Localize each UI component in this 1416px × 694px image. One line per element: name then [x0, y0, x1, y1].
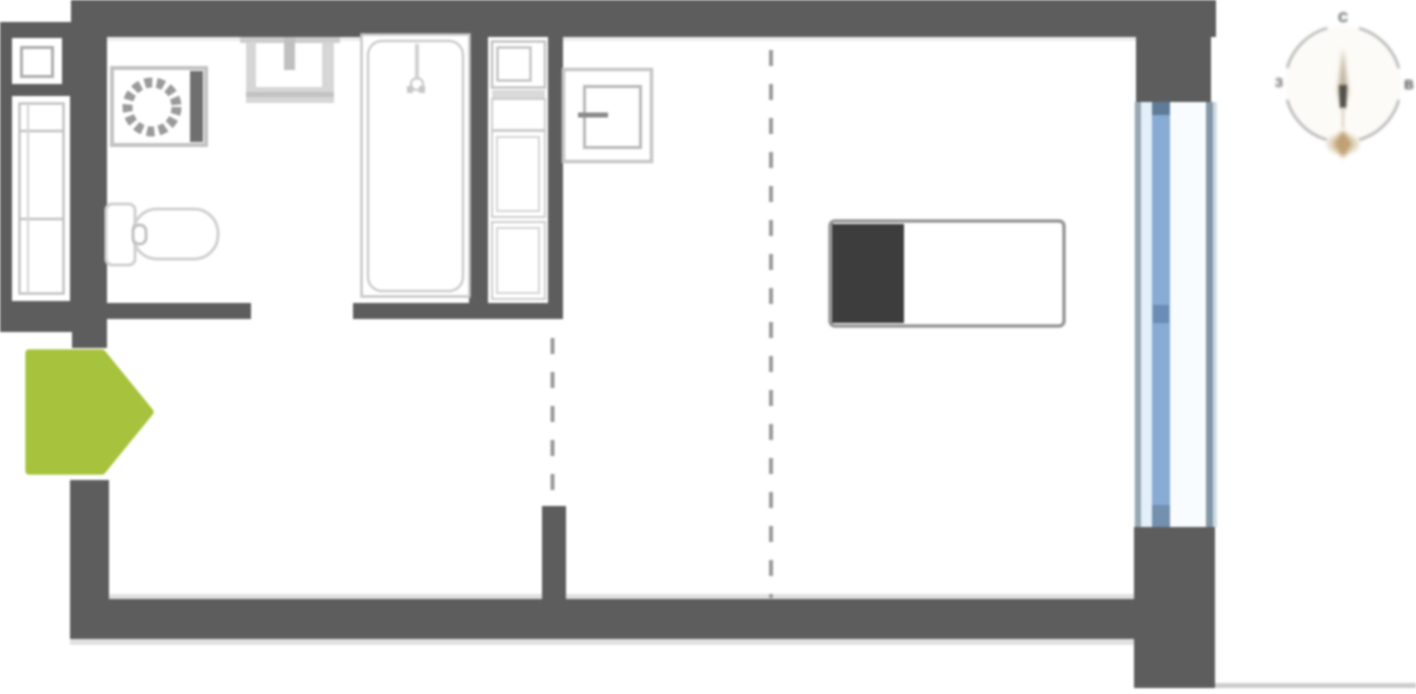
- svg-text:В: В: [1404, 77, 1413, 92]
- svg-text:З: З: [1275, 75, 1283, 90]
- svg-text:С: С: [1338, 9, 1348, 25]
